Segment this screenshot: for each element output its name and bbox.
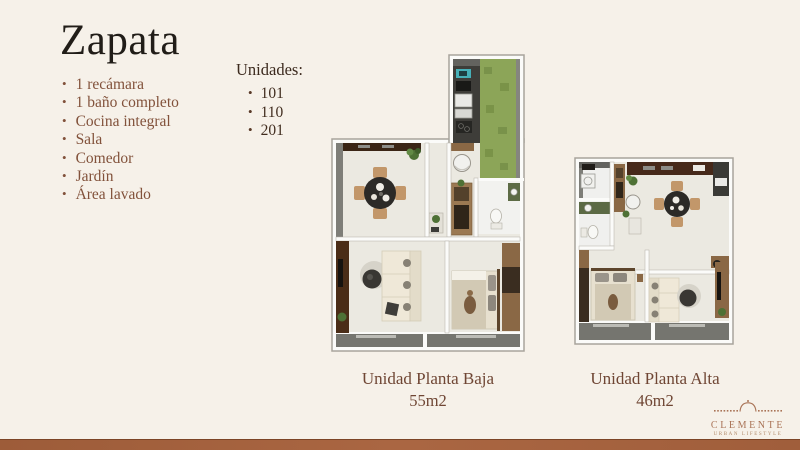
garden [480, 59, 516, 180]
bullet-icon: • [248, 123, 253, 136]
logo-arch-icon [712, 399, 784, 414]
feature-item: •Comedor [62, 150, 179, 168]
water-heater [626, 195, 640, 209]
plant-icon [623, 211, 630, 218]
toilet [491, 209, 502, 223]
plant-icon [718, 308, 726, 316]
bullet-icon: • [62, 114, 67, 127]
vanity [579, 202, 610, 214]
logo-tagline: URBAN LIFESTYLE [706, 432, 790, 437]
feature-label: Cocina integral [76, 113, 171, 131]
toilet [588, 226, 598, 239]
tv [717, 272, 721, 300]
feature-item: •Área lavado [62, 186, 179, 204]
bullet-icon: • [248, 86, 253, 99]
kitchen [453, 66, 480, 143]
feature-item: •1 recámara [62, 76, 179, 94]
floorplan-alta-drawing [573, 154, 735, 350]
floorplan-planta-baja-image [330, 53, 526, 355]
tv [338, 259, 343, 287]
feature-list: •1 recámara •1 baño completo •Cocina int… [62, 76, 179, 205]
feature-item: •Jardín [62, 168, 179, 186]
coffee-table [680, 290, 697, 307]
page-title: Zapata [60, 16, 180, 65]
bullet-icon: • [62, 77, 67, 90]
feature-label: Jardín [76, 168, 114, 186]
plant-icon [432, 215, 440, 223]
tv [582, 164, 595, 170]
logo-brand: CLEMENTE [706, 420, 790, 431]
slide: Zapata •1 recámara •1 baño completo •Coc… [0, 0, 800, 450]
plan-name: Unidad Planta Alta [545, 368, 765, 390]
floorplan-baja-drawing [330, 53, 526, 355]
feature-label: 1 baño completo [76, 94, 179, 112]
feature-item: •Cocina integral [62, 113, 179, 131]
unidades-item: •101 [248, 85, 303, 104]
unidades-section: Unidades: •101 •110 •201 [236, 60, 303, 141]
plant-icon [338, 313, 347, 322]
bullet-icon: • [62, 132, 67, 145]
bathroom [474, 178, 524, 237]
caption-planta-baja: Unidad Planta Baja 55m2 [318, 368, 538, 412]
plant-icon [458, 180, 465, 187]
feature-label: Comedor [76, 150, 134, 168]
bullet-icon: • [248, 105, 253, 118]
feature-label: 1 recámara [76, 76, 144, 94]
unidades-heading: Unidades: [236, 60, 303, 80]
unit-number: 101 [261, 85, 284, 103]
floorplan-planta-alta-image [573, 154, 735, 350]
unidades-item: •110 [248, 104, 303, 123]
accent-bar [0, 439, 800, 450]
clemente-logo: CLEMENTE URBAN LIFESTYLE [706, 399, 790, 437]
bullet-icon: • [62, 187, 67, 200]
unit-number: 110 [261, 104, 284, 122]
bullet-icon: • [62, 95, 67, 108]
feature-label: Sala [76, 131, 103, 149]
unidades-list: •101 •110 •201 [248, 85, 303, 141]
feature-item: •1 baño completo [62, 94, 179, 112]
bed [591, 268, 635, 320]
feature-item: •Sala [62, 131, 179, 149]
feature-label: Área lavado [76, 186, 151, 204]
washer [581, 174, 595, 188]
unidades-item: •201 [248, 122, 303, 141]
water-heater [454, 155, 471, 172]
bed [452, 269, 500, 331]
sofa [649, 278, 679, 322]
unit-number: 201 [261, 122, 284, 140]
bullet-icon: • [62, 151, 67, 164]
plan-area: 55m2 [318, 390, 538, 412]
bullet-icon: • [62, 169, 67, 182]
hall [429, 213, 443, 233]
plan-name: Unidad Planta Baja [318, 368, 538, 390]
